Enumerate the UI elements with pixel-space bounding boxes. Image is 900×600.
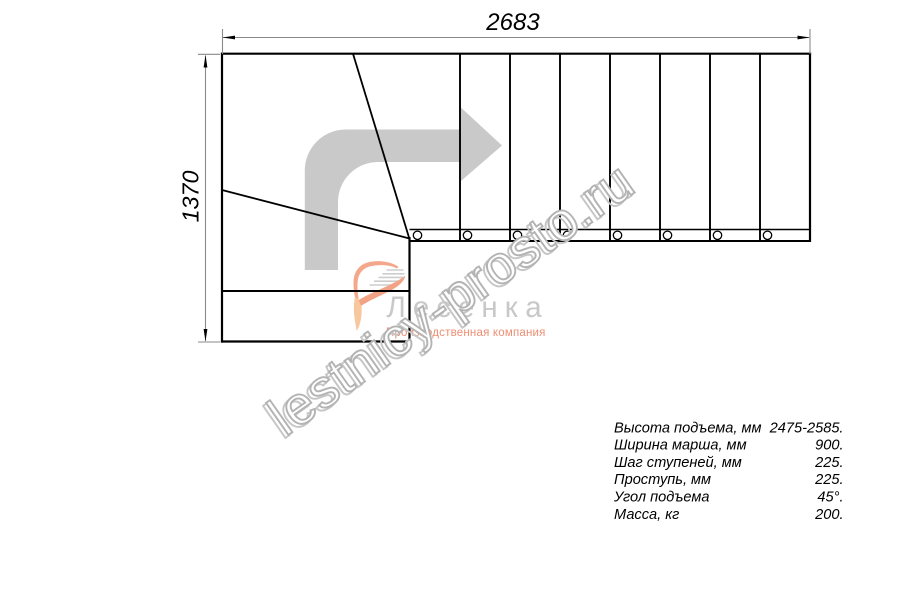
svg-text:225.: 225. [814, 472, 843, 488]
svg-text:225.: 225. [814, 455, 843, 471]
svg-text:45°.: 45°. [817, 490, 843, 506]
svg-text:200.: 200. [814, 507, 843, 523]
svg-text:1370: 1370 [178, 171, 204, 223]
svg-text:Шаг ступеней, мм: Шаг ступеней, мм [614, 455, 742, 471]
svg-text:2475-2585.: 2475-2585. [769, 420, 844, 436]
svg-text:Ширина марша, мм: Ширина марша, мм [614, 438, 747, 454]
svg-text:Высота подъема, мм: Высота подъема, мм [614, 420, 762, 436]
svg-text:Масса, кг: Масса, кг [614, 507, 679, 523]
svg-text:Угол подъема: Угол подъема [613, 490, 709, 506]
svg-text:2683: 2683 [485, 9, 540, 36]
svg-text:900.: 900. [815, 438, 843, 454]
svg-text:Проступь, мм: Проступь, мм [614, 472, 711, 488]
